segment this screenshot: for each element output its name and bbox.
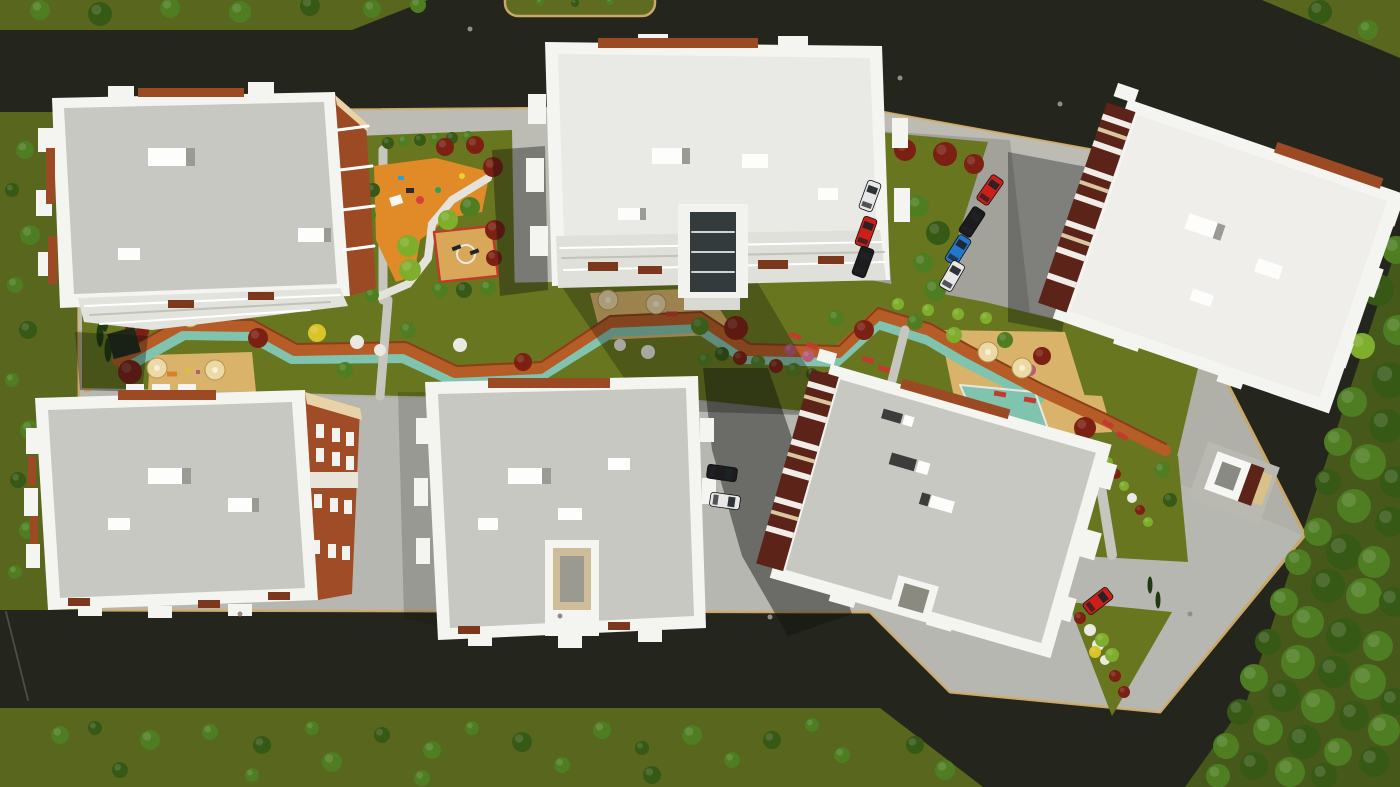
tree <box>946 327 962 343</box>
tree-highlight <box>836 749 843 756</box>
tree-canopy <box>1240 752 1268 780</box>
b5-bump <box>414 478 428 506</box>
tree-canopy <box>229 1 251 23</box>
tree <box>1326 534 1362 570</box>
tree <box>1240 664 1268 692</box>
tree-canopy <box>935 760 955 780</box>
tree <box>480 280 496 296</box>
b4-facade-window <box>312 540 320 554</box>
b4-roof-box <box>148 468 182 484</box>
tree-highlight <box>7 375 13 381</box>
b4-brown-trim <box>30 516 38 544</box>
tree-canopy <box>7 277 23 293</box>
tree <box>1337 489 1371 523</box>
tree-highlight <box>366 2 374 10</box>
tree-highlight <box>924 305 929 310</box>
tree-highlight <box>1120 687 1125 692</box>
tree <box>374 727 390 743</box>
tree <box>1304 518 1332 546</box>
tree-canopy <box>337 362 353 378</box>
b4-facade-window <box>342 546 350 560</box>
tree <box>1359 747 1389 777</box>
conifer-tree <box>1156 592 1161 609</box>
tree-canopy <box>763 731 781 749</box>
tree-canopy <box>802 350 814 362</box>
tree-canopy <box>1359 747 1389 777</box>
b4-facade-window <box>328 544 336 558</box>
lamp <box>468 27 473 32</box>
tree-canopy <box>382 137 394 149</box>
tree <box>465 721 479 735</box>
tree-highlight <box>448 133 453 138</box>
tree-highlight <box>22 523 30 531</box>
tree <box>436 138 454 156</box>
tree <box>19 321 37 339</box>
play-equipment <box>459 173 465 179</box>
tree-canopy <box>1213 733 1239 759</box>
patio-umbrella <box>205 360 225 380</box>
tree-canopy <box>88 721 102 735</box>
bench <box>186 368 190 372</box>
tree-canopy <box>1326 534 1362 570</box>
tree <box>514 353 532 371</box>
tree-highlight <box>1387 318 1400 331</box>
tree-canopy <box>1109 670 1121 682</box>
tree-highlight <box>325 754 333 762</box>
tree <box>5 373 19 387</box>
tree <box>682 725 702 745</box>
b4-bump <box>24 488 38 516</box>
b5-terrace-brown <box>608 622 630 630</box>
tree-canopy <box>1318 656 1350 688</box>
tree-highlight <box>1111 671 1116 676</box>
b2-brown-trim <box>598 38 758 48</box>
tree <box>20 225 40 245</box>
tree-highlight <box>1128 494 1132 498</box>
tree-highlight <box>726 754 733 761</box>
tree <box>10 472 26 488</box>
b5-bump <box>416 538 430 564</box>
tree-canopy <box>834 747 850 763</box>
tree-canopy <box>1154 462 1170 478</box>
b1-roof-box-side <box>186 148 195 166</box>
tree-canopy <box>805 718 819 732</box>
tree-canopy <box>453 338 467 352</box>
b4-roof-box <box>228 498 252 512</box>
b2-bump <box>892 118 908 148</box>
tree <box>51 726 69 744</box>
tree-canopy <box>397 235 419 257</box>
tree-highlight <box>439 140 447 148</box>
tree-canopy <box>308 324 326 342</box>
tree-highlight <box>1328 431 1340 443</box>
b5-roof-box <box>608 458 630 470</box>
tree-highlight <box>910 198 919 207</box>
tree-canopy <box>398 135 410 147</box>
tree-highlight <box>916 255 924 263</box>
b4-brown-trim <box>118 390 216 400</box>
b1-brown-trim <box>46 148 55 204</box>
tree-highlight <box>766 733 774 741</box>
tree-highlight <box>1355 668 1370 683</box>
b4-facade-band <box>310 472 358 488</box>
tree <box>438 210 458 230</box>
tree <box>5 183 19 197</box>
tree-highlight <box>143 732 151 740</box>
tree <box>398 135 410 147</box>
building-top-left <box>36 82 376 330</box>
conifer-tree <box>1148 577 1153 594</box>
tree-canopy <box>1350 444 1386 480</box>
tree <box>414 770 430 786</box>
tree-highlight <box>376 729 383 736</box>
b5-roof-box-side <box>542 468 551 484</box>
tree <box>432 282 448 298</box>
tree-highlight <box>515 734 523 742</box>
tree-highlight <box>999 334 1006 341</box>
tree-highlight <box>402 262 411 271</box>
tree-highlight <box>1257 718 1270 731</box>
tree-highlight <box>1363 750 1376 763</box>
tree-highlight <box>1319 472 1330 483</box>
tree-canopy <box>350 335 364 349</box>
tree-highlight <box>1091 647 1096 652</box>
tree-canopy <box>245 768 259 782</box>
tree-canopy <box>1281 645 1315 679</box>
tree-canopy <box>414 134 426 146</box>
tree <box>952 308 964 320</box>
tree-highlight <box>90 723 96 729</box>
tree <box>643 766 661 784</box>
tree-highlight <box>1315 766 1326 777</box>
tree-highlight <box>894 299 899 304</box>
tree-canopy <box>322 752 342 772</box>
tree <box>382 137 394 149</box>
tree <box>350 335 364 349</box>
tree-highlight <box>384 138 389 143</box>
tree <box>828 310 844 326</box>
b2-roof-box <box>652 148 682 164</box>
tree <box>322 752 342 772</box>
bench <box>167 372 177 377</box>
b4-facade-window <box>314 494 322 508</box>
tree-highlight <box>646 768 654 776</box>
tree-highlight <box>204 726 211 733</box>
tree-canopy <box>1240 664 1268 692</box>
tree <box>805 718 819 732</box>
tree-canopy <box>1095 633 1109 647</box>
tree-canopy <box>374 727 390 743</box>
tree-highlight <box>948 329 955 336</box>
tree-highlight <box>1341 390 1354 403</box>
b4-roof-box <box>108 518 130 530</box>
tree-canopy <box>20 225 40 245</box>
b2-terrace-brown <box>818 256 844 264</box>
tree-highlight <box>1244 755 1256 767</box>
tree-highlight <box>1322 660 1335 673</box>
lamp <box>238 612 243 617</box>
tree-canopy <box>980 312 992 324</box>
tree <box>892 298 904 310</box>
tree-highlight <box>400 238 409 247</box>
tree-canopy <box>363 0 381 18</box>
tree <box>1240 752 1268 780</box>
tree-canopy <box>1084 624 1096 636</box>
b4-roof-box-side <box>252 498 259 512</box>
tree-canopy <box>432 282 448 298</box>
tree <box>1227 699 1253 725</box>
tree <box>906 736 924 754</box>
tree <box>1033 347 1051 365</box>
tree-highlight <box>467 723 473 729</box>
tree <box>1255 629 1281 655</box>
b1-brown-trim <box>138 88 244 97</box>
tree <box>980 312 992 324</box>
tree <box>399 259 421 281</box>
tree <box>1118 686 1130 698</box>
tree <box>248 328 268 348</box>
tree-highlight <box>54 728 62 736</box>
tree-highlight <box>1377 366 1392 381</box>
tree <box>933 142 957 166</box>
tree-canopy <box>724 752 740 768</box>
tree-canopy <box>1315 469 1341 495</box>
tree-highlight <box>1136 506 1140 510</box>
tree-canopy <box>456 282 472 298</box>
tree-canopy <box>374 344 386 356</box>
tree-highlight <box>1331 538 1346 553</box>
tree-highlight <box>426 743 434 751</box>
tree <box>1281 645 1315 679</box>
tree <box>337 362 353 378</box>
tree <box>913 253 933 273</box>
tree <box>763 731 781 749</box>
tree-highlight <box>416 135 421 140</box>
tree-canopy <box>1301 689 1335 723</box>
patio-umbrella-pole <box>1019 365 1025 371</box>
tree-highlight <box>1279 760 1292 773</box>
tree <box>1135 505 1145 515</box>
b1-roof <box>64 102 337 294</box>
tree-highlight <box>488 222 496 230</box>
tree-canopy <box>1275 757 1305 787</box>
building-bottom-left <box>24 384 362 618</box>
b4-terrace-brown <box>268 592 290 600</box>
tree-highlight <box>339 364 346 371</box>
tree-canopy <box>1304 518 1332 546</box>
tree <box>1109 670 1121 682</box>
b1-roof-box <box>148 148 186 166</box>
tree <box>8 565 22 579</box>
tree-canopy <box>1253 715 1283 745</box>
tree-highlight <box>1372 718 1385 731</box>
tree <box>112 762 128 778</box>
b4-facade-window <box>332 452 340 466</box>
lamp <box>558 614 563 619</box>
tree-canopy <box>964 154 984 174</box>
tree-highlight <box>936 145 946 155</box>
tree-highlight <box>455 340 461 346</box>
b5-roof-box <box>558 508 582 520</box>
tree <box>245 768 259 782</box>
b2-roof-box <box>742 154 768 168</box>
tree <box>229 1 251 23</box>
tree-highlight <box>517 355 525 363</box>
tree <box>1253 715 1283 745</box>
tree-highlight <box>1367 634 1380 647</box>
tree-highlight <box>1217 736 1228 747</box>
bench <box>196 370 200 374</box>
tree-canopy <box>436 138 454 156</box>
tree-canopy <box>423 741 441 759</box>
tree-canopy <box>1339 701 1369 731</box>
b4-facade-window <box>346 432 354 446</box>
tree-canopy <box>1089 646 1101 658</box>
tree <box>1318 656 1350 688</box>
tree-canopy <box>514 353 532 371</box>
tree <box>308 324 326 342</box>
tree <box>88 721 102 735</box>
tree <box>1095 633 1109 647</box>
tree <box>374 344 386 356</box>
tree <box>140 730 160 750</box>
tree <box>397 235 419 257</box>
tree-canopy <box>1350 664 1386 700</box>
tree <box>1358 546 1390 578</box>
tree-highlight <box>400 136 405 141</box>
tree <box>907 195 929 217</box>
tree <box>1287 725 1321 759</box>
tree-canopy <box>1206 764 1230 787</box>
tree-highlight <box>1156 464 1163 471</box>
tree-canopy <box>19 321 37 339</box>
tree <box>1119 481 1129 491</box>
tree-canopy <box>1227 699 1253 725</box>
tree-highlight <box>114 764 121 771</box>
tree-highlight <box>12 474 19 481</box>
tree-highlight <box>163 0 171 8</box>
tree-canopy <box>1311 569 1345 603</box>
tree-canopy <box>1255 629 1281 655</box>
b4-facade-window <box>316 448 324 462</box>
tree <box>400 322 416 338</box>
tree-highlight <box>1343 704 1356 717</box>
tree-highlight <box>1306 693 1320 707</box>
b4-bump <box>26 544 40 568</box>
b1-roof-box-side <box>324 228 331 242</box>
tree <box>456 282 472 298</box>
tree-highlight <box>1231 702 1242 713</box>
tree <box>512 732 532 752</box>
tree-highlight <box>1076 613 1081 618</box>
tree <box>363 0 381 18</box>
tree-canopy <box>10 472 26 488</box>
b5-notch-gray <box>560 556 584 602</box>
tree-canopy <box>892 298 904 310</box>
tree-canopy <box>112 762 128 778</box>
tree-highlight <box>1292 729 1306 743</box>
tree-highlight <box>1384 470 1397 483</box>
tree <box>1268 680 1300 712</box>
tree-canopy <box>1358 20 1378 40</box>
tree-highlight <box>804 351 809 356</box>
tree-canopy <box>51 726 69 744</box>
tree-highlight <box>1316 573 1330 587</box>
tree-highlight <box>464 132 469 137</box>
tree-canopy <box>399 259 421 281</box>
tree-highlight <box>432 134 437 139</box>
tree-highlight <box>469 138 477 146</box>
tree <box>1346 578 1382 614</box>
tree <box>1213 733 1239 759</box>
tree <box>1368 714 1400 746</box>
tree-highlight <box>1374 413 1388 427</box>
tree <box>1292 606 1324 638</box>
b4-roof-box-side <box>182 468 191 484</box>
b1-terrace-brown <box>248 292 274 300</box>
play-equipment <box>398 176 404 180</box>
b4-facade-window <box>316 424 324 438</box>
tree-canopy <box>248 328 268 348</box>
tree-highlight <box>938 762 946 770</box>
tree-canopy <box>1285 549 1311 575</box>
tree-canopy <box>854 320 874 340</box>
b1-terrace-brown <box>168 300 194 308</box>
tree-canopy <box>1143 517 1153 527</box>
tree-highlight <box>352 337 358 343</box>
tree-highlight <box>311 326 319 334</box>
tree <box>1163 493 1177 507</box>
b4-facade-window <box>330 498 338 512</box>
b4-roof <box>48 402 305 598</box>
tree-canopy <box>1337 489 1371 523</box>
tree-highlight <box>857 322 865 330</box>
tree-highlight <box>1384 691 1396 703</box>
tree-canopy <box>1324 738 1352 766</box>
tree <box>1301 689 1335 723</box>
patio-umbrella-pole <box>212 367 218 373</box>
tree <box>16 141 34 159</box>
tree <box>305 721 319 735</box>
b2-roof-box-side <box>682 148 690 164</box>
tree <box>907 314 923 330</box>
tree-highlight <box>1296 610 1309 623</box>
b2-terrace-brown <box>638 266 662 274</box>
play-structure <box>406 188 414 193</box>
tree-canopy <box>643 766 661 784</box>
tree-highlight <box>1209 767 1219 777</box>
tree <box>935 760 955 780</box>
b2-entrance-steps <box>684 298 740 310</box>
tree-highlight <box>458 284 465 291</box>
tree <box>1285 549 1311 575</box>
tree-highlight <box>247 770 253 776</box>
tree-highlight <box>807 720 813 726</box>
tree-highlight <box>256 738 264 746</box>
tree <box>453 338 467 352</box>
car-white-windshield <box>727 496 735 507</box>
b2-terrace-brown <box>588 262 618 271</box>
play-equipment <box>435 187 441 193</box>
tree-highlight <box>1362 550 1375 563</box>
tree-canopy <box>907 195 929 217</box>
tree-canopy <box>682 725 702 745</box>
tree-highlight <box>982 313 987 318</box>
tree-canopy <box>1074 612 1086 624</box>
tree <box>1363 631 1393 661</box>
tree-canopy <box>913 253 933 273</box>
tree <box>1127 493 1137 503</box>
